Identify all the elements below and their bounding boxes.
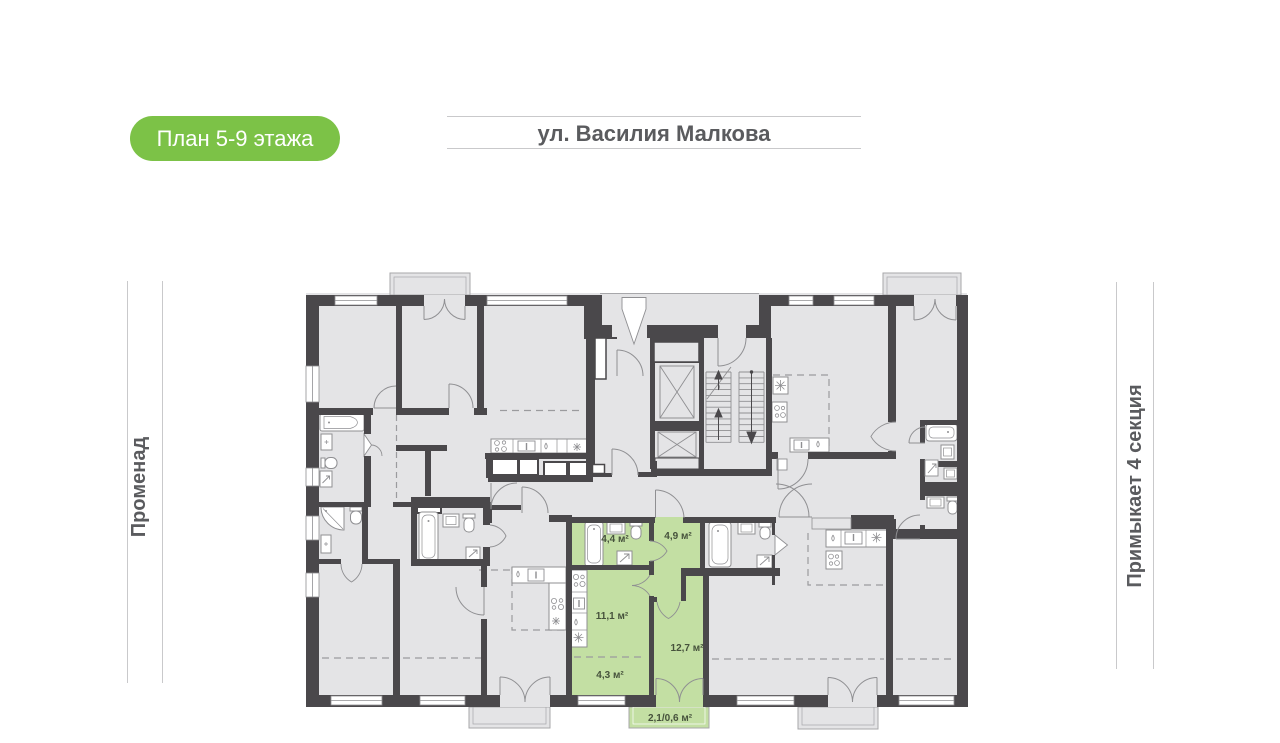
svg-text:4,4 м²: 4,4 м²	[601, 534, 629, 545]
svg-text:12,7 м²: 12,7 м²	[671, 643, 705, 654]
svg-text:11,1 м²: 11,1 м²	[596, 611, 629, 622]
svg-text:Променад: Променад	[128, 437, 150, 538]
svg-text:Примыкает 4 секция: Примыкает 4 секция	[1124, 384, 1146, 587]
svg-text:4,3 м²: 4,3 м²	[596, 670, 624, 681]
svg-text:4,9 м²: 4,9 м²	[664, 531, 692, 542]
svg-text:План 5-9 этажа: План 5-9 этажа	[157, 126, 315, 151]
svg-text:ул. Василия Малкова: ул. Василия Малкова	[538, 121, 772, 146]
svg-text:2,1/0,6 м²: 2,1/0,6 м²	[648, 713, 693, 724]
